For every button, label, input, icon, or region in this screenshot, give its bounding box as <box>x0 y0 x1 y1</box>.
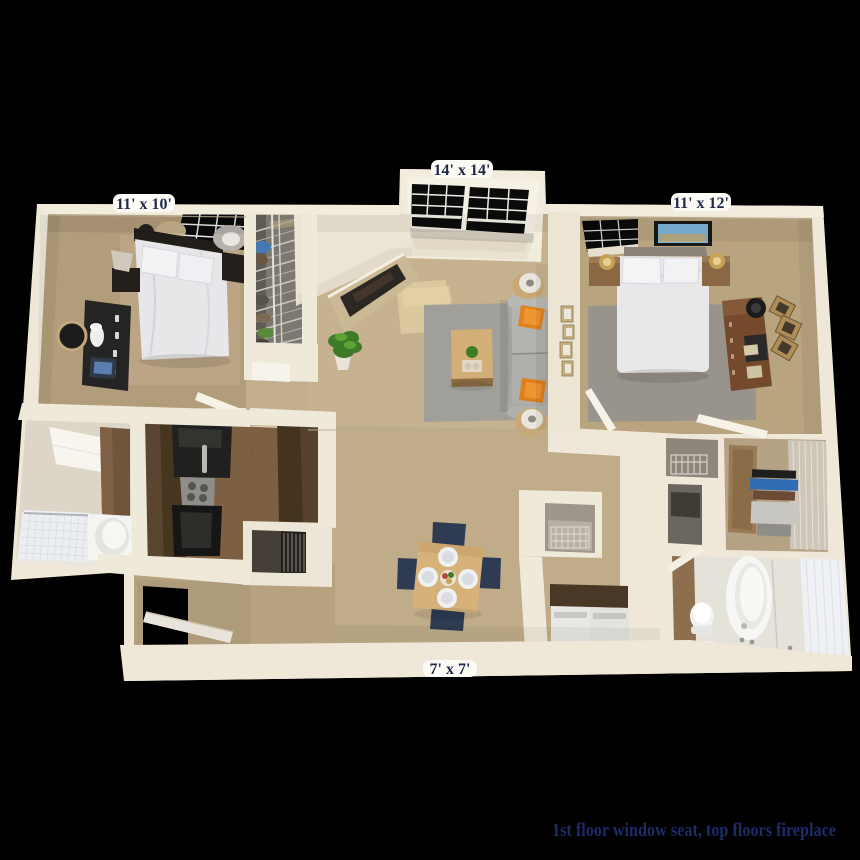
svg-text:14' x 14': 14' x 14' <box>434 162 491 179</box>
svg-text:7' x 7': 7' x 7' <box>430 661 471 678</box>
svg-text:11' x 12': 11' x 12' <box>673 195 729 212</box>
svg-text:1st floor window seat, top flo: 1st floor window seat, top floors firepl… <box>552 820 836 841</box>
svg-text:11' x 10': 11' x 10' <box>116 196 172 213</box>
